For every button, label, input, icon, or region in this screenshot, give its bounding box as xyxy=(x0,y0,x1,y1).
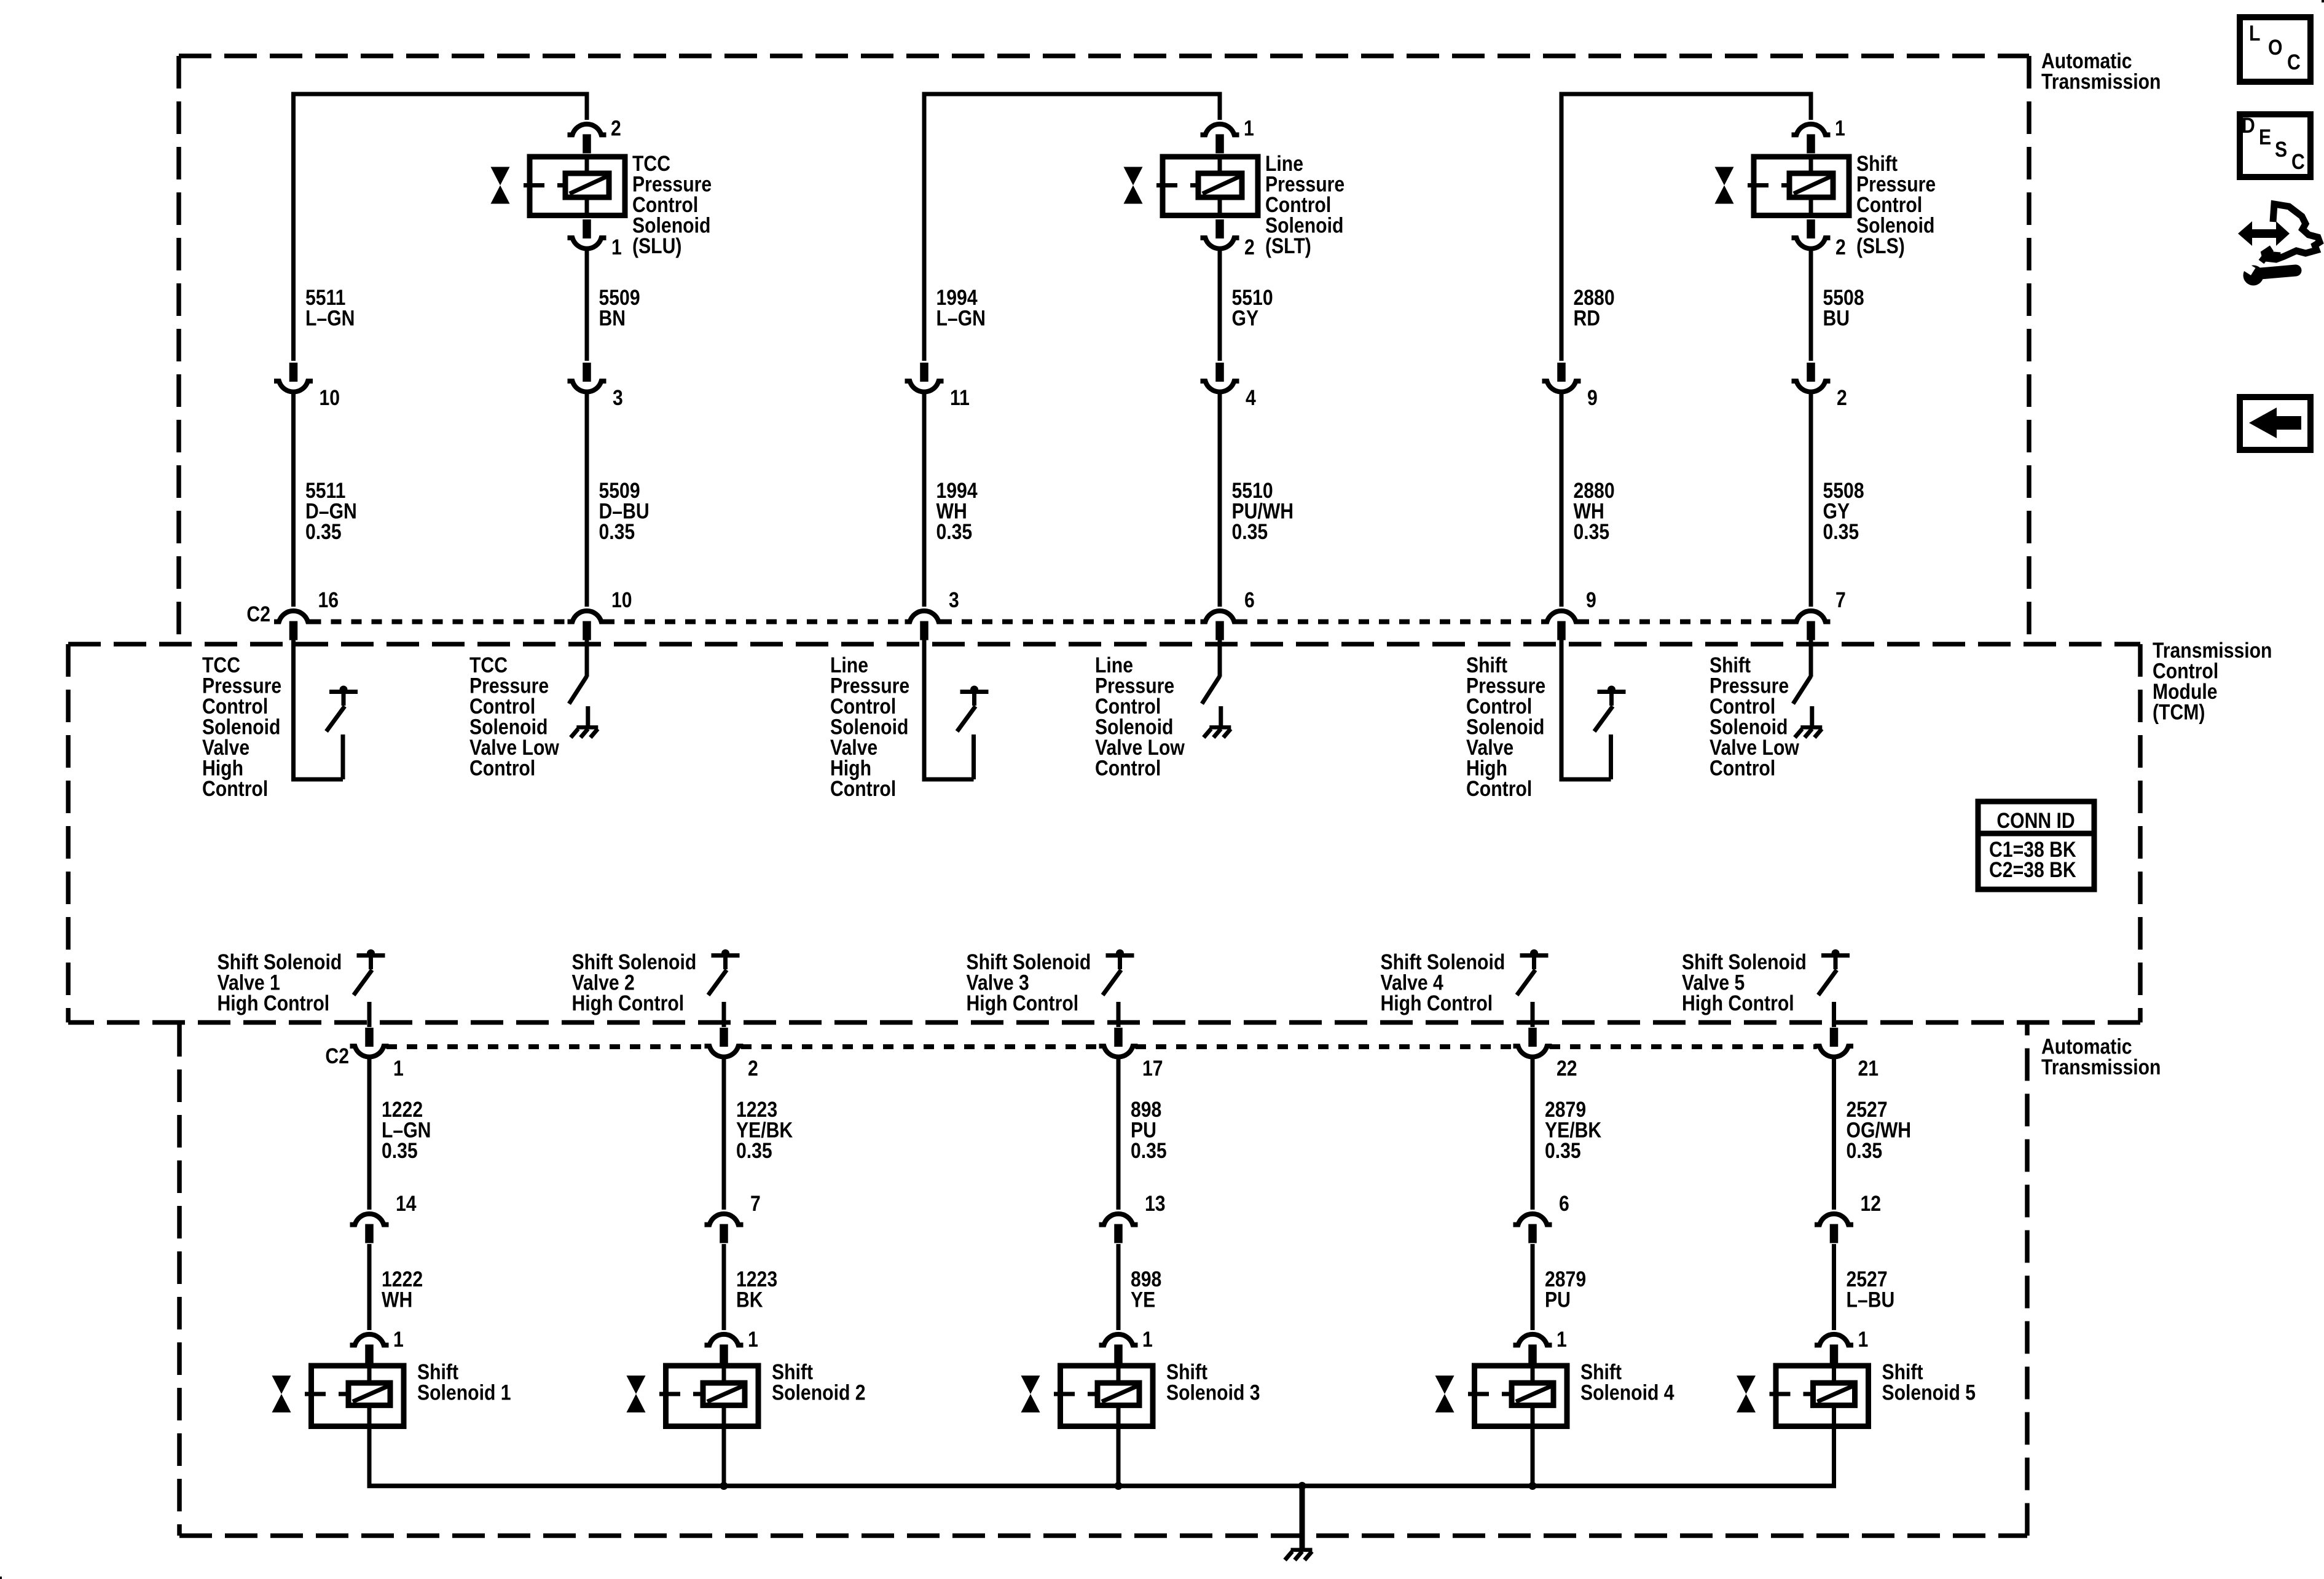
svg-text:3: 3 xyxy=(613,385,623,410)
svg-text:0.35: 0.35 xyxy=(736,1138,772,1163)
svg-text:S: S xyxy=(2275,137,2287,162)
svg-text:GY: GY xyxy=(1232,305,1259,330)
svg-text:10: 10 xyxy=(611,588,632,612)
svg-text:0.35: 0.35 xyxy=(305,519,342,544)
svg-text:0.35: 0.35 xyxy=(1545,1138,1581,1163)
svg-text:BK: BK xyxy=(736,1287,763,1312)
svg-text:Solenoid 5: Solenoid 5 xyxy=(1882,1380,1976,1404)
svg-text:BN: BN xyxy=(599,305,626,330)
svg-text:2: 2 xyxy=(1837,385,1847,410)
svg-text:0.35: 0.35 xyxy=(1574,519,1610,544)
svg-text:1: 1 xyxy=(1244,116,1254,140)
svg-text:16: 16 xyxy=(318,588,339,612)
svg-text:BU: BU xyxy=(1823,305,1850,330)
svg-text:1: 1 xyxy=(1858,1327,1869,1352)
svg-text:D: D xyxy=(2242,113,2255,138)
svg-text:11: 11 xyxy=(950,385,970,410)
svg-text:C2=38 BK: C2=38 BK xyxy=(1989,857,2076,882)
svg-text:C2: C2 xyxy=(246,602,270,626)
svg-text:Control: Control xyxy=(1095,755,1161,780)
svg-text:Solenoid 2: Solenoid 2 xyxy=(772,1380,866,1404)
svg-text:Transmission: Transmission xyxy=(2041,1055,2161,1079)
svg-text:L: L xyxy=(2249,21,2260,45)
svg-text:12: 12 xyxy=(1861,1191,1882,1216)
svg-text:CONN ID: CONN ID xyxy=(1996,808,2075,833)
svg-text:3: 3 xyxy=(949,588,959,612)
svg-text:1: 1 xyxy=(1142,1327,1153,1352)
svg-text:4: 4 xyxy=(1246,385,1256,410)
svg-text:Solenoid 1: Solenoid 1 xyxy=(417,1380,511,1404)
svg-text:Control: Control xyxy=(1710,755,1775,780)
svg-text:1: 1 xyxy=(611,235,622,259)
svg-text:21: 21 xyxy=(1858,1056,1879,1081)
svg-text:13: 13 xyxy=(1145,1191,1166,1216)
svg-text:0.35: 0.35 xyxy=(382,1138,418,1163)
svg-text:High Control: High Control xyxy=(1682,991,1794,1015)
svg-text:7: 7 xyxy=(1835,588,1846,612)
svg-text:17: 17 xyxy=(1142,1056,1163,1081)
svg-text:0.35: 0.35 xyxy=(599,519,635,544)
svg-text:1: 1 xyxy=(393,1327,404,1352)
svg-text:WH: WH xyxy=(382,1287,412,1312)
svg-text:C: C xyxy=(2287,50,2301,74)
svg-text:High Control: High Control xyxy=(218,991,330,1015)
svg-text:Solenoid 3: Solenoid 3 xyxy=(1166,1380,1260,1404)
svg-text:1: 1 xyxy=(393,1056,404,1081)
svg-text:(SLU): (SLU) xyxy=(632,234,681,258)
svg-text:9: 9 xyxy=(1587,385,1598,410)
svg-text:Control: Control xyxy=(830,776,896,801)
svg-text:22: 22 xyxy=(1557,1056,1577,1081)
svg-text:Control: Control xyxy=(469,755,535,780)
svg-text:L–BU: L–BU xyxy=(1847,1287,1895,1312)
svg-text:Control: Control xyxy=(1466,776,1532,801)
svg-text:RD: RD xyxy=(1574,305,1601,330)
svg-text:E: E xyxy=(2259,125,2271,149)
svg-text:0.35: 0.35 xyxy=(936,519,973,544)
svg-text:1: 1 xyxy=(1835,116,1845,140)
svg-text:6: 6 xyxy=(1244,588,1255,612)
svg-text:(SLT): (SLT) xyxy=(1265,234,1311,258)
svg-text:High Control: High Control xyxy=(967,991,1079,1015)
svg-text:PU: PU xyxy=(1545,1287,1571,1312)
svg-text:1: 1 xyxy=(748,1327,758,1352)
svg-text:9: 9 xyxy=(1586,588,1596,612)
svg-text:0.35: 0.35 xyxy=(1847,1138,1883,1163)
svg-text:2: 2 xyxy=(611,116,621,140)
svg-text:L–GN: L–GN xyxy=(305,305,355,330)
svg-text:C2: C2 xyxy=(325,1044,349,1068)
svg-text:1: 1 xyxy=(1557,1327,1567,1352)
svg-text:7: 7 xyxy=(750,1191,761,1216)
svg-text:High Control: High Control xyxy=(1381,991,1493,1015)
svg-text:L–GN: L–GN xyxy=(936,305,986,330)
svg-text:Transmission: Transmission xyxy=(2041,69,2161,93)
svg-text:6: 6 xyxy=(1559,1191,1569,1216)
svg-text:(SLS): (SLS) xyxy=(1856,234,1905,258)
svg-text:YE: YE xyxy=(1131,1287,1155,1312)
svg-text:14: 14 xyxy=(396,1191,417,1216)
svg-text:O: O xyxy=(2268,35,2282,60)
svg-text:(TCM): (TCM) xyxy=(2153,699,2205,724)
svg-text:C: C xyxy=(2291,149,2305,174)
svg-text:0.35: 0.35 xyxy=(1232,519,1268,544)
svg-text:High Control: High Control xyxy=(572,991,685,1015)
svg-text:10: 10 xyxy=(320,385,340,410)
svg-text:0.35: 0.35 xyxy=(1823,519,1859,544)
svg-text:Solenoid 4: Solenoid 4 xyxy=(1580,1380,1674,1404)
svg-text:0.35: 0.35 xyxy=(1131,1138,1167,1163)
svg-text:2: 2 xyxy=(1835,235,1846,259)
svg-text:2: 2 xyxy=(748,1056,758,1081)
svg-text:2: 2 xyxy=(1244,235,1255,259)
svg-text:Control: Control xyxy=(202,776,268,801)
